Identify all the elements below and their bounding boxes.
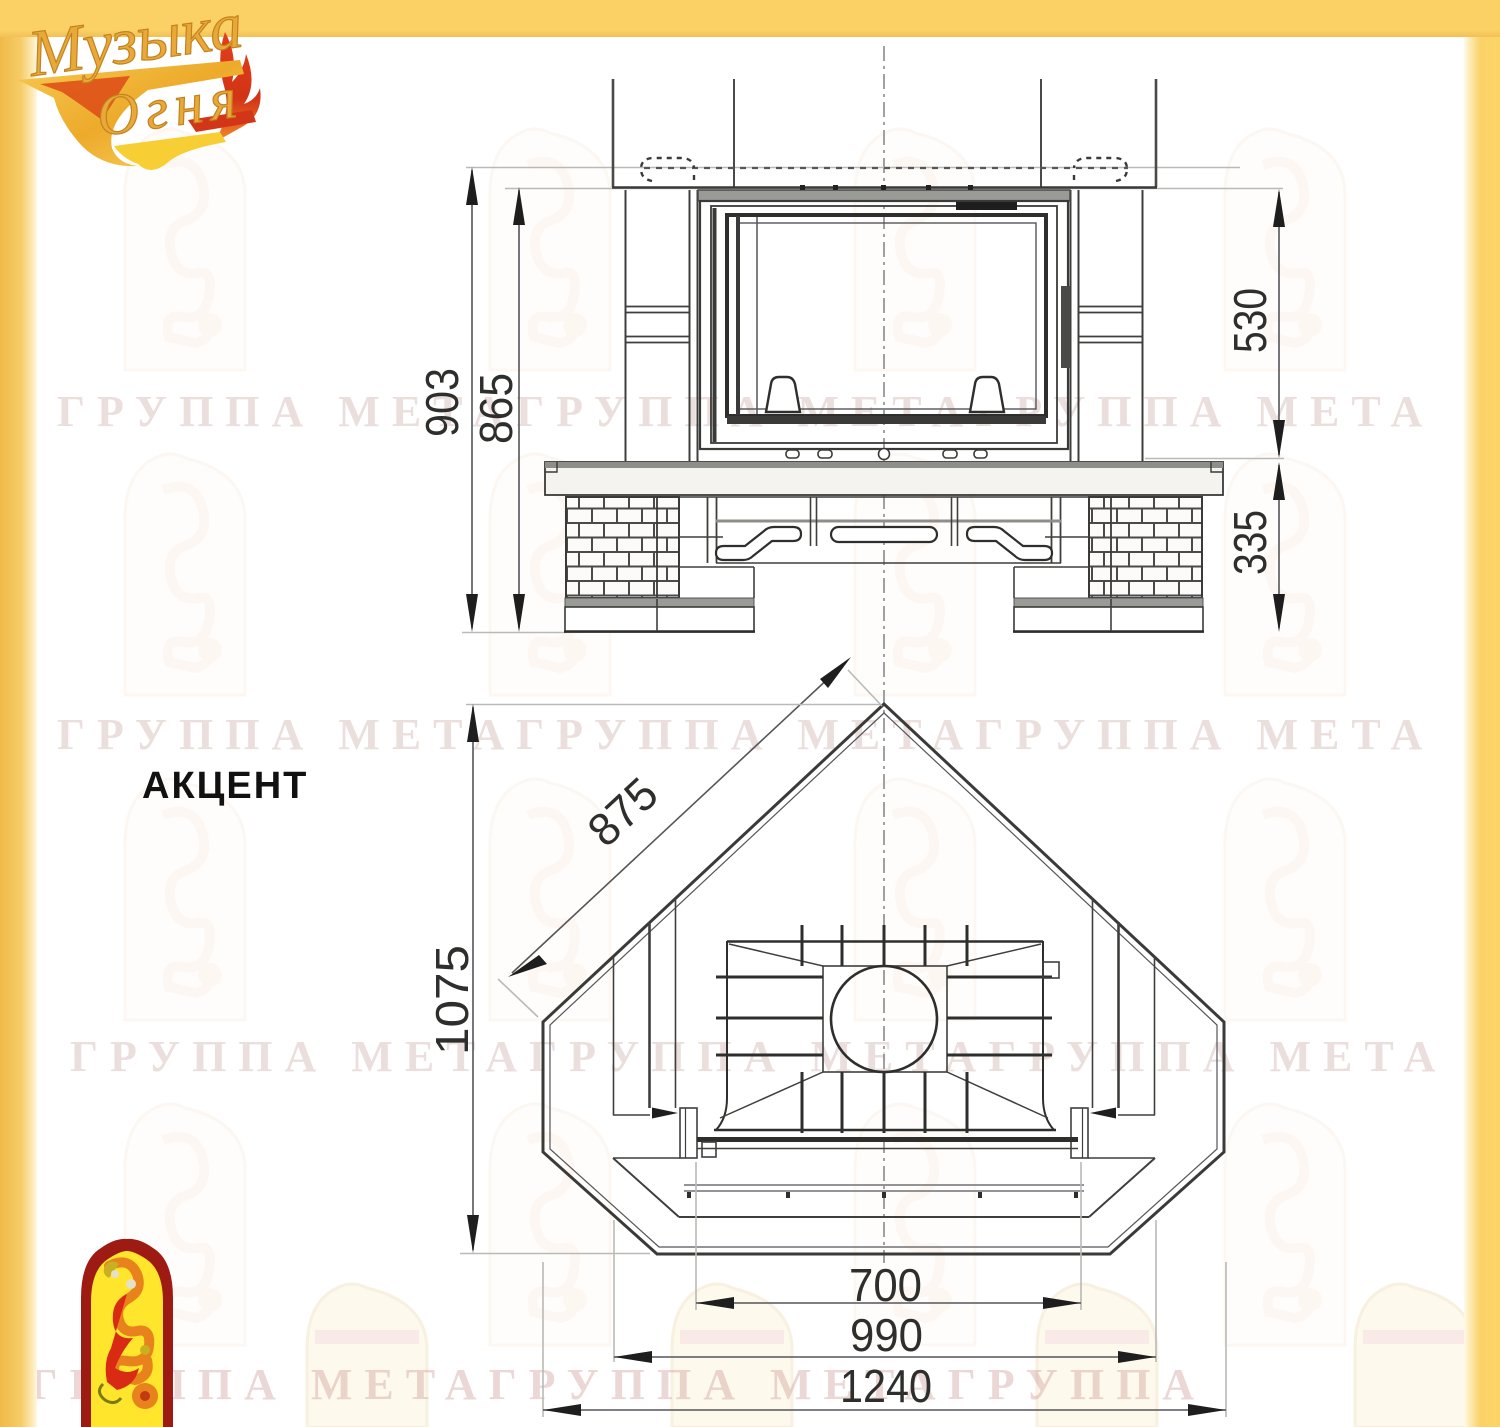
svg-text:903: 903: [416, 368, 468, 437]
svg-text:1075: 1075: [426, 945, 478, 1055]
svg-text:1240: 1240: [840, 1360, 932, 1412]
svg-text:875: 875: [577, 767, 667, 856]
svg-text:865: 865: [470, 373, 522, 444]
svg-text:990: 990: [850, 1309, 923, 1361]
svg-text:530: 530: [1224, 288, 1276, 353]
svg-text:335: 335: [1224, 510, 1276, 575]
svg-text:700: 700: [849, 1259, 922, 1311]
